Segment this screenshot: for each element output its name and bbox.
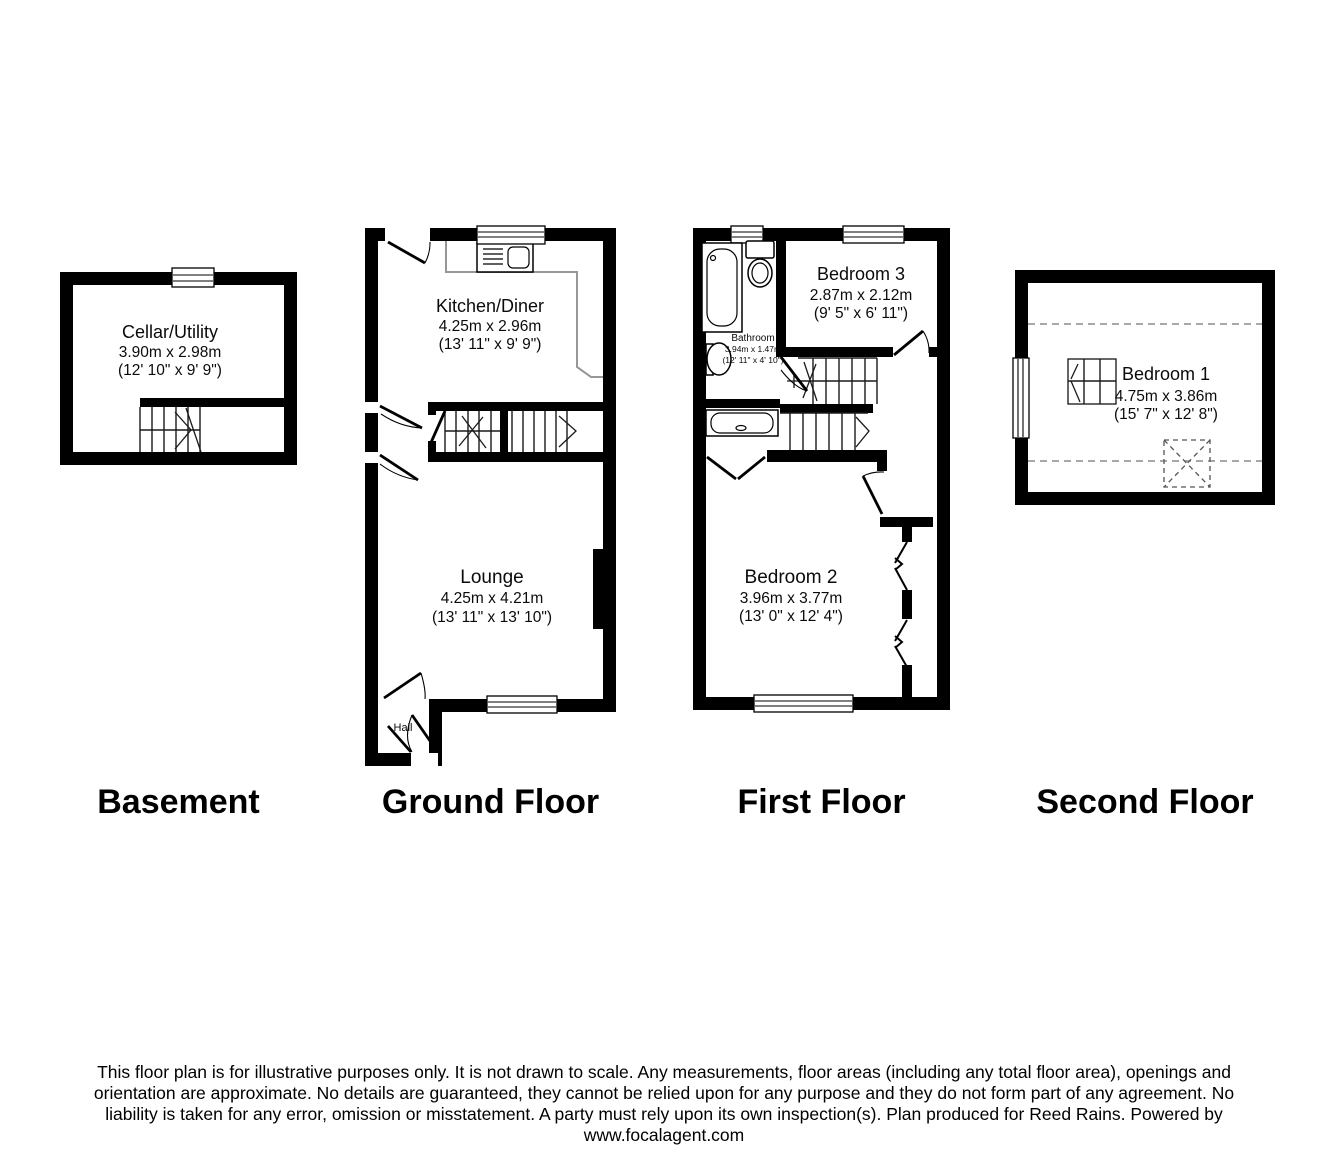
room-dim-imperial: (9' 5" x 6' 11") [814,305,908,322]
bathroom-wall [776,241,786,357]
floor-title-first: First Floor [693,783,950,822]
room-name-hall: Hall [394,722,413,734]
landing-wall [880,517,933,527]
bedroom3-wall [786,347,893,357]
room-dim-metric: 4.75m x 3.86m [1115,388,1218,405]
room-dim-imperial: (12' 10" x 9' 9") [118,362,222,379]
room-dim-metric: 4.25m x 4.21m [441,590,544,607]
bathroom-bottom-wall [706,399,780,408]
room-name: Lounge [460,567,523,588]
ground-floor-plan: Kitchen/Diner 4.25m x 2.96m (13' 11" x 9… [365,226,616,766]
door-opening [383,699,425,712]
wardrobe-wall [902,665,912,697]
room-dim-imperial: (13' 11" x 13' 10") [432,609,552,626]
stairs-bottom-wall [428,452,616,462]
room-label: Cellar/Utility 3.90m x 2.98m (12' 10" x … [118,322,222,379]
room-label: Bedroom 1 4.75m x 3.86m (15' 7" x 12' 8"… [1114,364,1218,423]
wall-stub [877,462,887,471]
room-label: Kitchen/Diner 4.25m x 2.96m (13' 11" x 9… [436,296,544,353]
room-label: Bedroom 3 2.87m x 2.12m (9' 5" x 6' 11") [810,264,913,322]
room-dim-imperial: (12' 11" x 4' 10") [722,355,783,365]
stairs-divider-wall [780,404,873,413]
room-name: Kitchen/Diner [436,296,544,316]
room-dim-metric: 3.96m x 3.77m [740,590,843,607]
stairs-divider-wall [500,402,508,462]
floor-title-second: Second Floor [1015,783,1275,822]
second-floor-plan: Bedroom 1 4.75m x 3.86m (15' 7" x 12' 8"… [1013,270,1275,505]
window [172,268,214,287]
room-dim-metric: 3.94m x 1.47m [725,344,781,354]
disclaimer-text: This floor plan is for illustrative purp… [0,1062,1328,1146]
door-opening [385,228,430,241]
disclaimer-line: liability is taken for any error, omissi… [0,1104,1328,1125]
room-dim-imperial: (15' 7" x 12' 8") [1114,406,1218,423]
first-floor-plan: Bedroom 3 2.87m x 2.12m (9' 5" x 6' 11")… [693,226,950,712]
bathtub-icon [702,243,742,332]
room-dim-imperial: (13' 11" x 9' 9") [439,336,542,353]
disclaimer-line: This floor plan is for illustrative purp… [0,1062,1328,1083]
disclaimer-line: orientation are approximate. No details … [0,1083,1328,1104]
room-label: Bedroom 2 3.96m x 3.77m (13' 0" x 12' 4"… [739,567,843,625]
window [487,696,557,713]
door-opening [411,753,438,766]
room-dim-metric: 2.87m x 2.12m [810,287,913,304]
bedroom2-top-wall [767,450,887,462]
toilet-icon [746,241,774,287]
floor-title-basement: Basement [60,783,297,822]
room-dim-imperial: (13' 0" x 12' 4") [739,608,843,625]
kitchen-sink-icon [477,243,533,272]
disclaimer-line: www.focalagent.com [0,1125,1328,1146]
floorplan-image: Cellar/Utility 3.90m x 2.98m (12' 10" x … [0,0,1328,1151]
room-name: Bedroom 1 [1122,364,1210,384]
window [843,226,904,243]
wardrobe-wall [902,527,912,542]
room-name: Cellar/Utility [122,322,218,342]
wall-stub [428,402,436,415]
floor-title-ground: Ground Floor [365,783,616,822]
bedroom3-wall [929,347,937,357]
door-opening [365,402,378,413]
room-name: Bedroom 2 [745,567,838,588]
room-name: Bedroom 3 [817,264,905,284]
storage-unit-icon [706,410,778,436]
window [1013,358,1029,438]
room-name: Bathroom [731,333,774,344]
window [754,695,853,712]
floorplan-page: { "floors": [ { "title": "Basement", "ro… [0,0,1328,1151]
basement-plan: Cellar/Utility 3.90m x 2.98m (12' 10" x … [60,268,297,465]
room-dim-metric: 4.25m x 2.96m [439,318,542,335]
room-dim-metric: 3.90m x 2.98m [119,344,222,361]
chimney-breast [593,549,616,629]
room-label: Bathroom 3.94m x 1.47m (12' 11" x 4' 10"… [722,333,783,365]
window [477,226,545,244]
stairs-top-wall [428,402,616,411]
interior-wall [140,398,284,407]
door-opening [365,452,378,463]
wardrobe-wall [902,590,912,619]
